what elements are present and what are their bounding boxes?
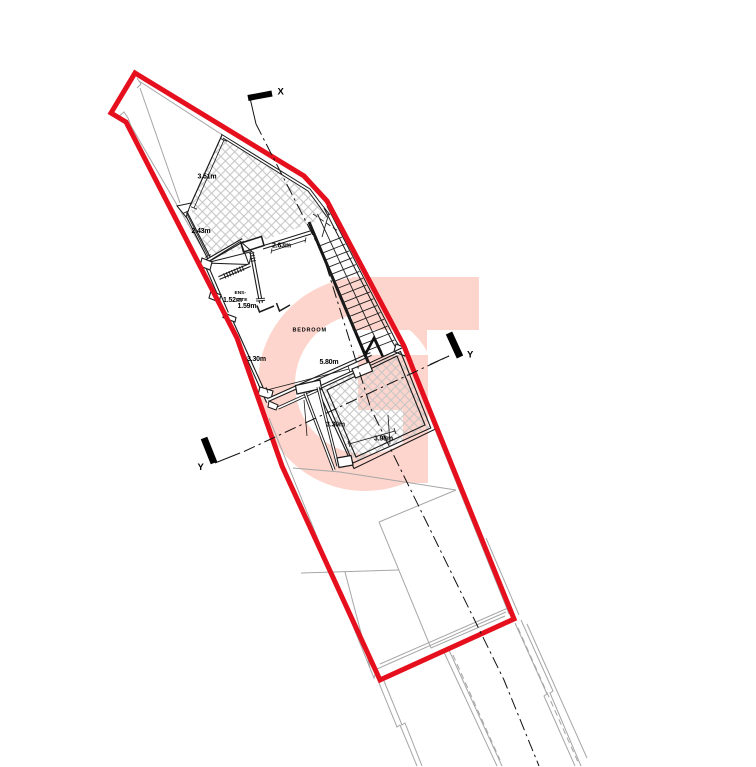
svg-text:Y: Y (467, 350, 474, 361)
svg-text:2.63m: 2.63m (272, 243, 291, 250)
svg-text:X: X (278, 87, 285, 98)
svg-text:1.59m: 1.59m (238, 303, 257, 310)
svg-text:5.80m: 5.80m (320, 359, 339, 366)
svg-text:3.51m: 3.51m (198, 174, 217, 181)
svg-text:Y: Y (198, 462, 205, 473)
svg-text:2.43m: 2.43m (192, 228, 211, 235)
svg-text:3.98m: 3.98m (374, 436, 393, 443)
svg-text:3.30m: 3.30m (326, 422, 345, 429)
svg-text:ENS-: ENS- (235, 290, 247, 296)
svg-text:BEDROOM: BEDROOM (293, 328, 327, 334)
svg-text:3.30m: 3.30m (247, 356, 266, 363)
